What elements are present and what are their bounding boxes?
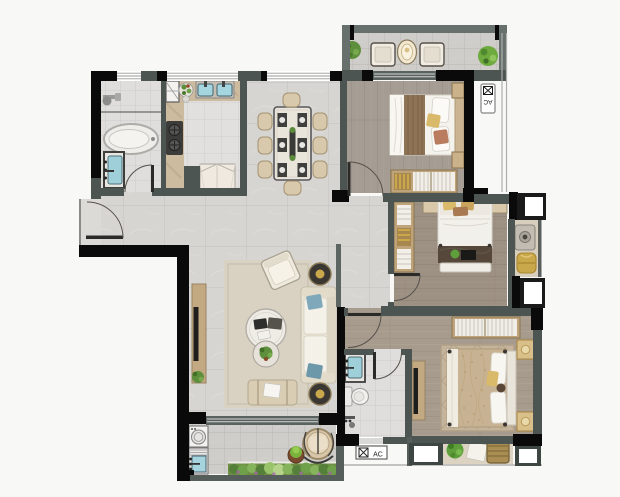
svg-text:AC: AC (483, 98, 492, 105)
svg-text:AC: AC (373, 452, 383, 459)
